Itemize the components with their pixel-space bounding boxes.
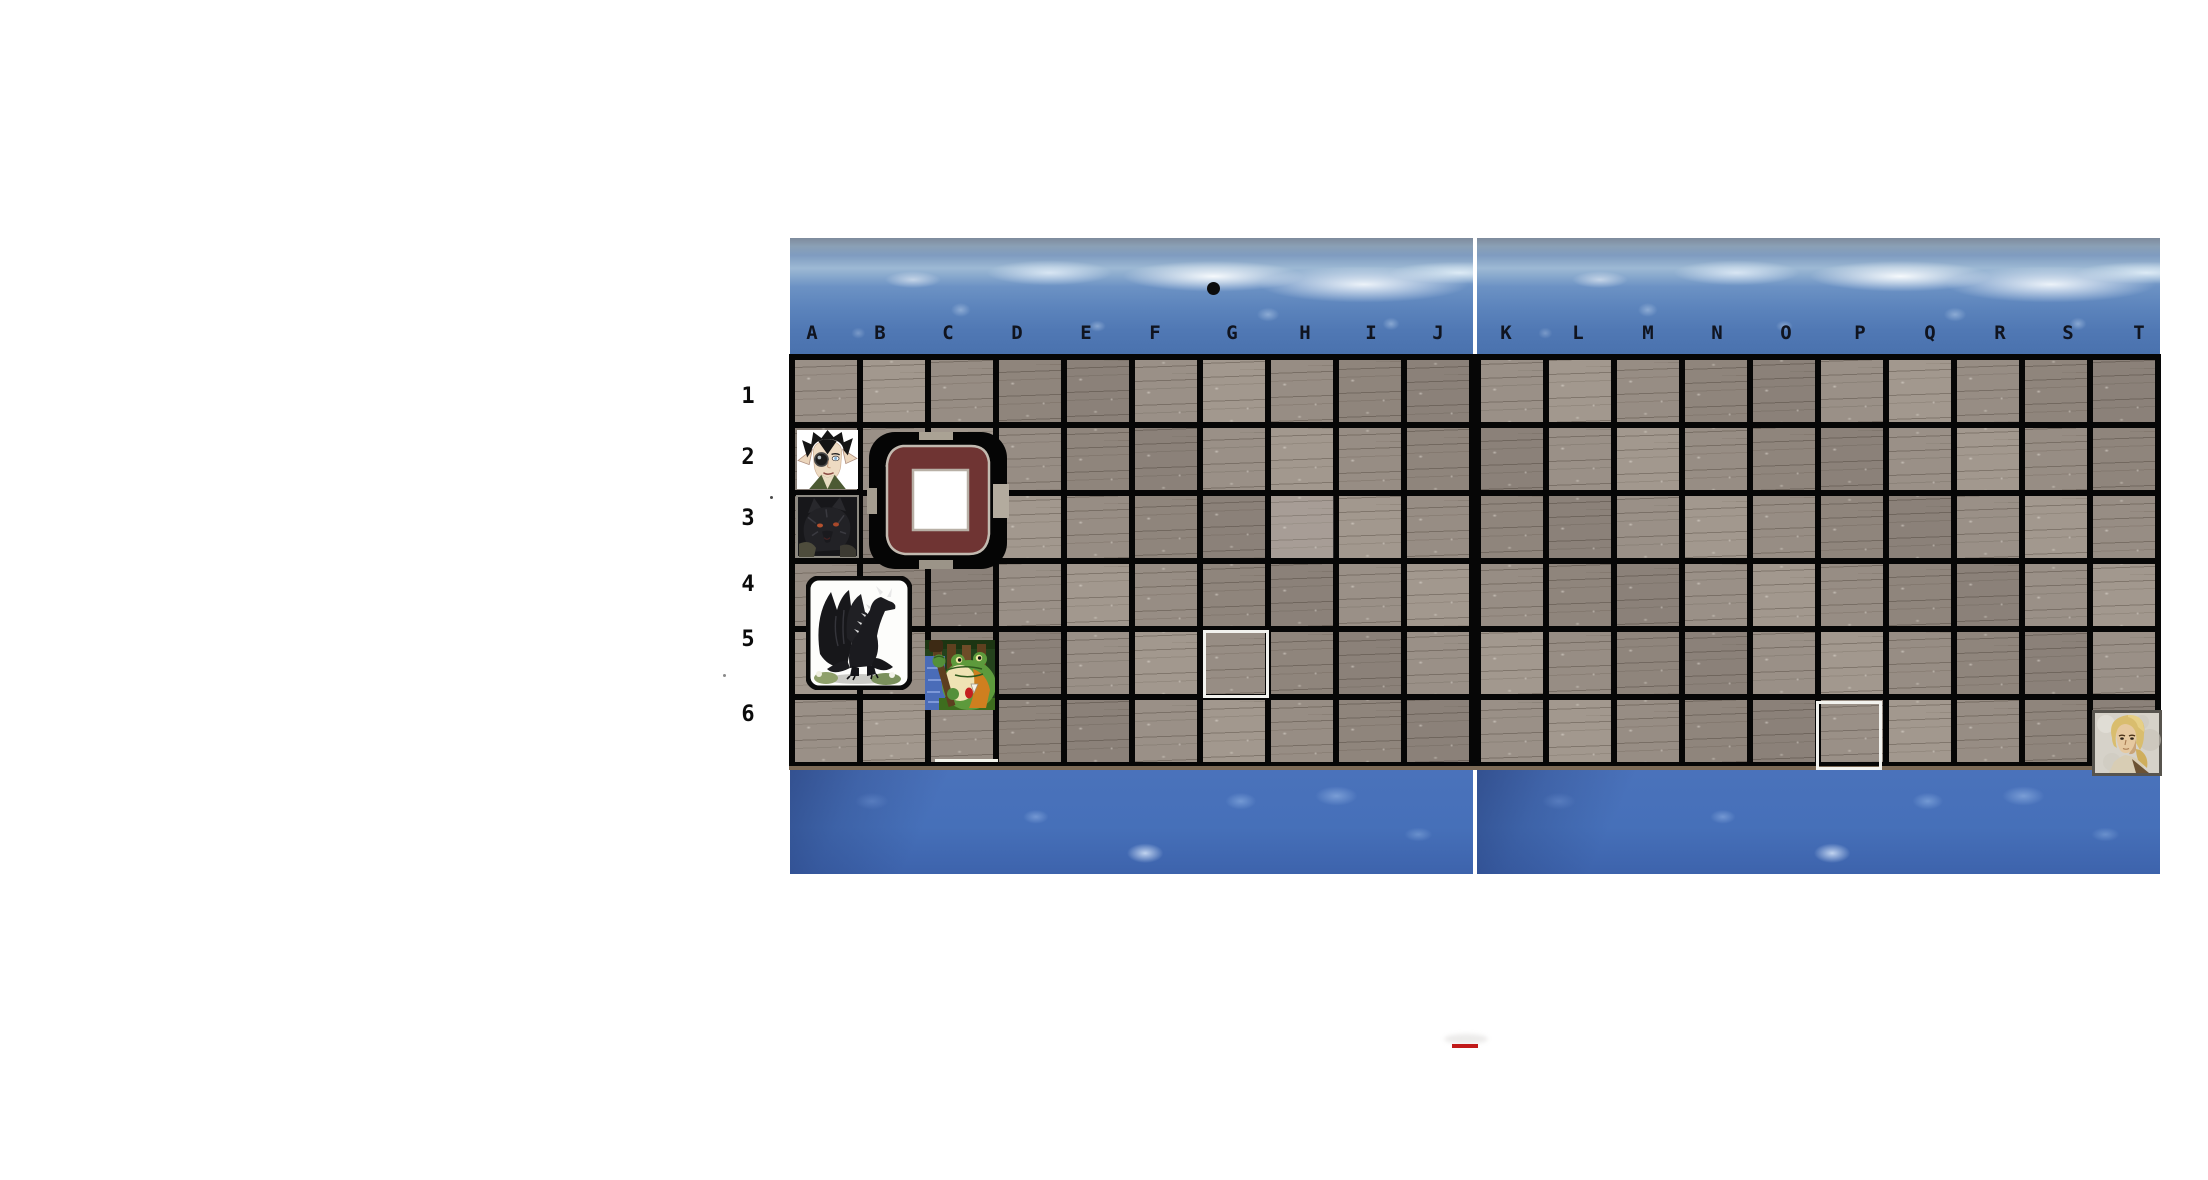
column-label: T	[2124, 323, 2154, 343]
grid-cell[interactable]	[1821, 496, 1883, 558]
grid-cell[interactable]	[795, 700, 857, 762]
ink-dot-marker	[1207, 282, 1220, 295]
grid-cell[interactable]	[1957, 360, 2019, 422]
column-label: L	[1563, 323, 1593, 343]
ink-speck	[723, 674, 726, 677]
column-label: B	[865, 323, 895, 343]
vampire-token[interactable]	[797, 430, 858, 489]
grid-cell[interactable]	[1481, 496, 1543, 558]
row-label: 4	[733, 573, 763, 597]
grid-cell[interactable]	[1135, 700, 1197, 762]
grid-cell[interactable]	[1685, 496, 1747, 558]
grid-cell[interactable]	[1549, 428, 1611, 490]
grid-cell[interactable]	[1203, 700, 1265, 762]
column-label: E	[1071, 323, 1101, 343]
column-label: H	[1290, 323, 1320, 343]
grid-cell[interactable]	[1617, 428, 1679, 490]
grid-cell[interactable]	[1617, 564, 1679, 626]
column-label: C	[933, 323, 963, 343]
grid-cell[interactable]	[1407, 428, 1469, 490]
grid-cell[interactable]	[1067, 496, 1129, 558]
grid-cell[interactable]	[1889, 564, 1951, 626]
grid-cell[interactable]	[1889, 632, 1951, 694]
grid-cell[interactable]	[1481, 632, 1543, 694]
grid-cell[interactable]	[1549, 700, 1611, 762]
grid-cell[interactable]	[1617, 496, 1679, 558]
grid-cell[interactable]	[1271, 632, 1333, 694]
grid-cell[interactable]	[1549, 496, 1611, 558]
grid-cell[interactable]	[1339, 496, 1401, 558]
grid-cell[interactable]	[1617, 632, 1679, 694]
grid-cell[interactable]	[1407, 564, 1469, 626]
column-label: R	[1985, 323, 2015, 343]
column-label: G	[1217, 323, 1247, 343]
row-label: 1	[733, 385, 763, 409]
grid-cell[interactable]	[1203, 360, 1265, 422]
grid-cell[interactable]	[1407, 496, 1469, 558]
grid-cell[interactable]	[1203, 496, 1265, 558]
grid-cell[interactable]	[1067, 632, 1129, 694]
grid-cell[interactable]	[1481, 360, 1543, 422]
grid-cell[interactable]	[1753, 360, 1815, 422]
grid-cell[interactable]	[931, 564, 993, 626]
grid-cell[interactable]	[1549, 564, 1611, 626]
vtt-canvas: ABCDEFGHIJKLMNOPQRST123456	[0, 0, 2208, 1180]
grid-cell[interactable]	[2025, 428, 2087, 490]
grid-cell[interactable]	[1685, 564, 1747, 626]
grid-cell[interactable]	[2093, 632, 2155, 694]
grid-cell[interactable]	[1889, 700, 1951, 762]
grid-cell[interactable]	[1821, 632, 1883, 694]
column-label: D	[1002, 323, 1032, 343]
water-tile	[1477, 770, 2160, 874]
grid-cell[interactable]	[1957, 496, 2019, 558]
grid-cell[interactable]	[1753, 700, 1815, 762]
grid-cell[interactable]	[1135, 360, 1197, 422]
grid-cell[interactable]	[1067, 360, 1129, 422]
grid-cell[interactable]	[795, 360, 857, 422]
grid-cell[interactable]	[1135, 428, 1197, 490]
grid-cell[interactable]	[1889, 360, 1951, 422]
grid-cell[interactable]	[1957, 700, 2019, 762]
grid-cell[interactable]	[863, 700, 925, 762]
grid-cell[interactable]	[2025, 360, 2087, 422]
grid-cell[interactable]	[999, 700, 1061, 762]
grid-cell[interactable]	[2025, 564, 2087, 626]
grid-cell[interactable]	[1889, 428, 1951, 490]
ink-speck	[770, 496, 773, 499]
grid-cell[interactable]	[1135, 496, 1197, 558]
grid-cell[interactable]	[1685, 428, 1747, 490]
grid-cell[interactable]	[1203, 564, 1265, 626]
water-tile	[790, 770, 1473, 874]
grid-cell[interactable]	[1753, 632, 1815, 694]
grid-cell[interactable]	[2093, 360, 2155, 422]
column-label: M	[1633, 323, 1663, 343]
grid-cell[interactable]	[1957, 428, 2019, 490]
water-band-top	[790, 238, 2160, 354]
grid-cell[interactable]	[1067, 564, 1129, 626]
grid-cell[interactable]	[1271, 360, 1333, 422]
water-band-bottom	[790, 770, 2160, 874]
grid-cell[interactable]	[2093, 496, 2155, 558]
grid-cell[interactable]	[2025, 496, 2087, 558]
grid-cell[interactable]	[1135, 564, 1197, 626]
grid-cell[interactable]	[1549, 632, 1611, 694]
grid-cell[interactable]	[999, 360, 1061, 422]
frog-warrior-token[interactable]	[925, 640, 995, 710]
highlighted-cell[interactable]	[1816, 701, 1882, 770]
column-label: Q	[1915, 323, 1945, 343]
grid-cell[interactable]	[1685, 700, 1747, 762]
grid-cell[interactable]	[1407, 700, 1469, 762]
grid-cell[interactable]	[1271, 700, 1333, 762]
grid-cell[interactable]	[1753, 564, 1815, 626]
black-dragon-token[interactable]	[806, 576, 912, 690]
grid-cell[interactable]	[1339, 632, 1401, 694]
white-tick-marker	[935, 759, 998, 762]
grid-cell[interactable]	[1617, 360, 1679, 422]
grid-cell[interactable]	[1821, 428, 1883, 490]
column-label: N	[1702, 323, 1732, 343]
grid-cell[interactable]	[1481, 564, 1543, 626]
grid-cell[interactable]	[2093, 564, 2155, 626]
grid-cell[interactable]	[1957, 632, 2019, 694]
grid-cell[interactable]	[999, 564, 1061, 626]
blonde-portrait-token[interactable]	[2092, 710, 2162, 776]
black-wolf-token[interactable]	[796, 495, 859, 558]
grid-cell[interactable]	[1067, 428, 1129, 490]
column-label: S	[2053, 323, 2083, 343]
row-label: 2	[733, 446, 763, 470]
grid-cell[interactable]	[2025, 700, 2087, 762]
column-label: I	[1356, 323, 1386, 343]
ship-hatch-token[interactable]	[867, 432, 1009, 569]
grid-cell[interactable]	[1203, 428, 1265, 490]
row-label: 6	[733, 703, 763, 727]
grid-cell[interactable]	[1407, 632, 1469, 694]
grid-cell[interactable]	[1067, 700, 1129, 762]
column-label: A	[797, 323, 827, 343]
grid-cell[interactable]	[999, 632, 1061, 694]
grid-cell[interactable]	[1617, 700, 1679, 762]
grid-cell[interactable]	[1821, 360, 1883, 422]
column-label: J	[1423, 323, 1453, 343]
grid-cell[interactable]	[1889, 496, 1951, 558]
cell-light-patch	[1271, 496, 1334, 558]
column-label: O	[1771, 323, 1801, 343]
grid-cell[interactable]	[2025, 632, 2087, 694]
grid-cell[interactable]	[1339, 564, 1401, 626]
grid-cell[interactable]	[1339, 428, 1401, 490]
grid-cell[interactable]	[863, 360, 925, 422]
grid-cell[interactable]	[2093, 428, 2155, 490]
grid-cell[interactable]	[1957, 564, 2019, 626]
grid-cell[interactable]	[1339, 700, 1401, 762]
grid-cell[interactable]	[1685, 360, 1747, 422]
grid-cell[interactable]	[1753, 428, 1815, 490]
grid-cell[interactable]	[1339, 360, 1401, 422]
grid-cell[interactable]	[1271, 428, 1333, 490]
grid-cell[interactable]	[931, 360, 993, 422]
row-label: 3	[733, 507, 763, 531]
grid-cell[interactable]	[1753, 496, 1815, 558]
grid-cell[interactable]	[1481, 428, 1543, 490]
grid-cell[interactable]	[1481, 700, 1543, 762]
highlighted-cell[interactable]	[1203, 630, 1269, 698]
grid-cell[interactable]	[1271, 564, 1333, 626]
grid-cell[interactable]	[1407, 360, 1469, 422]
column-label: P	[1845, 323, 1875, 343]
pencil-smudge	[1444, 1034, 1488, 1044]
column-label: F	[1140, 323, 1170, 343]
grid-cell[interactable]	[1821, 564, 1883, 626]
grid-cell[interactable]	[1135, 632, 1197, 694]
grid-cell[interactable]	[1549, 360, 1611, 422]
row-label: 5	[733, 628, 763, 652]
grid-cell[interactable]	[1685, 632, 1747, 694]
red-dash-marker	[1452, 1044, 1478, 1048]
column-label: K	[1491, 323, 1521, 343]
